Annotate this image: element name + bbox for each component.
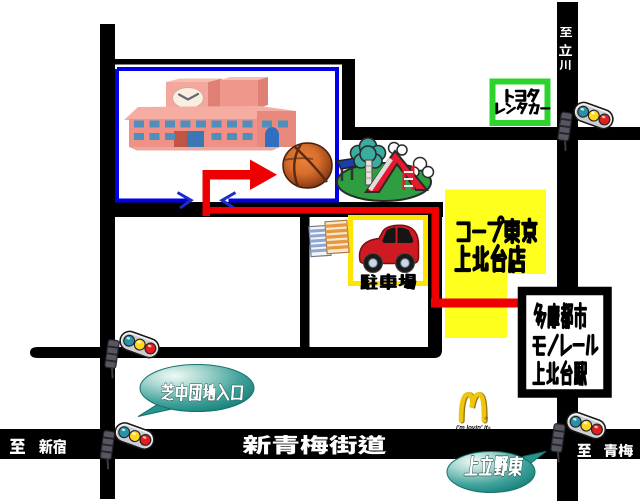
svg-text:®: ®: [485, 415, 489, 421]
svg-text:i'm lovin' it®: i'm lovin' it®: [456, 425, 491, 432]
